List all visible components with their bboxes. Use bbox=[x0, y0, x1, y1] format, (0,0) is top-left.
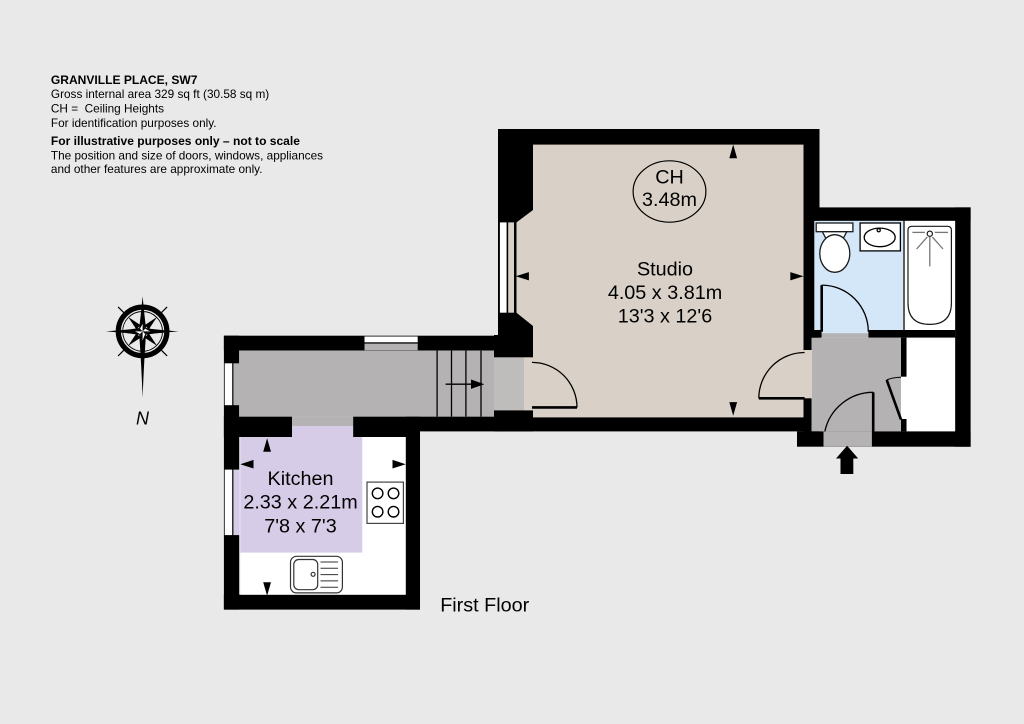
svg-text:Studio: Studio bbox=[637, 258, 693, 280]
svg-text:Gross internal area 329 sq ft: Gross internal area 329 sq ft (30.58 sq … bbox=[51, 87, 269, 101]
svg-text:N: N bbox=[136, 409, 150, 429]
svg-text:For identification purposes on: For identification purposes only. bbox=[51, 116, 217, 130]
svg-text:13'3 x 12'6: 13'3 x 12'6 bbox=[618, 306, 712, 328]
svg-text:CH: CH bbox=[655, 167, 684, 189]
svg-text:For illustrative purposes only: For illustrative purposes only – not to … bbox=[51, 134, 300, 148]
svg-text:GRANVILLE PLACE, SW7: GRANVILLE PLACE, SW7 bbox=[51, 73, 198, 87]
svg-text:3.48m: 3.48m bbox=[642, 189, 697, 211]
svg-text:CH = Ceiling Heights: CH = Ceiling Heights bbox=[51, 102, 164, 116]
svg-text:2.33 x 2.21m: 2.33 x 2.21m bbox=[243, 492, 357, 514]
svg-text:4.05 x 3.81m: 4.05 x 3.81m bbox=[608, 282, 722, 304]
svg-text:Kitchen: Kitchen bbox=[268, 468, 334, 490]
svg-text:The position and size of doors: The position and size of doors, windows,… bbox=[51, 148, 323, 162]
svg-text:First Floor: First Floor bbox=[440, 594, 529, 616]
svg-text:and other features are approxi: and other features are approximate only. bbox=[51, 162, 263, 176]
svg-text:7'8 x 7'3: 7'8 x 7'3 bbox=[264, 515, 336, 537]
